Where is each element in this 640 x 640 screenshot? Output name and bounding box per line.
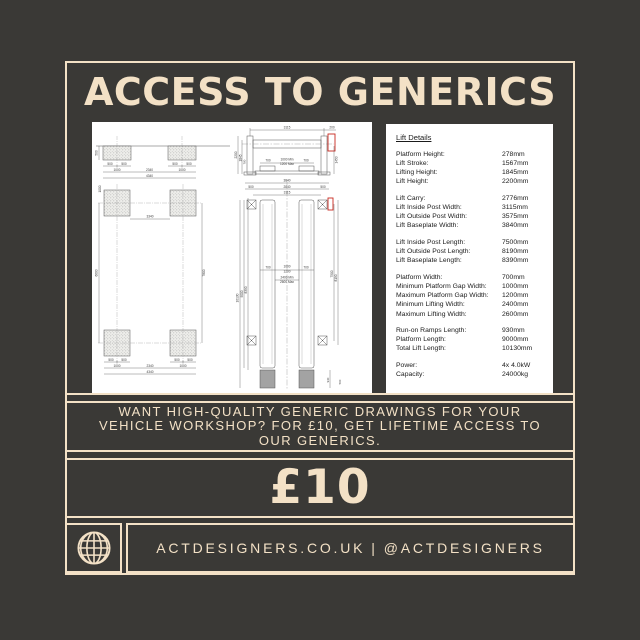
promo-box: WANT HIGH-QUALITY GENERIC DRAWINGS FOR Y… <box>65 401 575 452</box>
lift-details-row: Maximum Lifting Width: 2600mm <box>396 310 547 319</box>
spec-label: Lift Carry: <box>396 194 502 203</box>
svg-text:1000: 1000 <box>179 364 186 368</box>
lift-details-row: Run-on Ramps Length: 930mm <box>396 326 547 335</box>
spec-value: 3575mm <box>502 212 547 221</box>
spec-label <box>396 319 502 326</box>
svg-text:1000: 1000 <box>283 265 290 269</box>
page-title: ACCESS TO GENERICS <box>67 69 573 115</box>
spec-value: 1567mm <box>502 159 547 168</box>
svg-text:500: 500 <box>107 162 113 166</box>
spec-label: Lift Outside Post Length: <box>396 247 502 256</box>
spec-value: 2200mm <box>502 177 547 186</box>
lift-details-row: Lift Baseplate Width: 3840mm <box>396 221 547 230</box>
svg-text:500: 500 <box>172 162 178 166</box>
price-text: £10 <box>269 460 370 516</box>
lift-technical-drawing: 500 500 500 500 500 1000 2340 1000 4340 <box>92 122 372 393</box>
foundation-plan-view <box>98 184 202 374</box>
svg-text:1200: 1200 <box>283 270 290 274</box>
spec-label: Lift Baseplate Length: <box>396 256 502 265</box>
svg-text:3840: 3840 <box>283 179 290 183</box>
svg-text:1450: 1450 <box>335 156 339 163</box>
spec-label: Run-on Ramps Length: <box>396 326 502 335</box>
lift-details-row <box>396 231 547 238</box>
spec-label <box>396 187 502 194</box>
spec-value <box>502 266 547 273</box>
spec-label: Minimum Platform Gap Width: <box>396 282 502 291</box>
lift-details-row <box>396 187 547 194</box>
spec-value: 7500mm <box>502 238 547 247</box>
svg-text:4340: 4340 <box>146 174 153 178</box>
lift-details-row: Lift Inside Post Length: 7500mm <box>396 238 547 247</box>
spec-value: 8390mm <box>502 256 547 265</box>
footer-bar: ACTDESIGNERS.CO.UK|@ACTDESIGNERS <box>126 523 575 573</box>
lift-details-row <box>396 354 547 361</box>
spec-label <box>396 354 502 361</box>
svg-text:500: 500 <box>121 358 127 362</box>
lift-plan-view <box>240 180 338 390</box>
svg-text:780: 780 <box>243 159 247 164</box>
spec-value: 24000kg <box>502 370 547 379</box>
lift-details-row: Minimum Lifting Width: 2400mm <box>396 300 547 309</box>
svg-text:1000: 1000 <box>98 185 102 192</box>
spec-value: 4x 4.0kW <box>502 361 547 370</box>
spec-label: Minimum Lifting Width: <box>396 300 502 309</box>
svg-text:2340: 2340 <box>146 168 153 172</box>
promo-line: WANT HIGH-QUALITY GENERIC DRAWINGS FOR Y… <box>118 405 521 420</box>
footer-links: ACTDESIGNERS.CO.UK|@ACTDESIGNERS <box>156 540 545 556</box>
spec-label: Lift Inside Post Length: <box>396 238 502 247</box>
spec-value: 3840mm <box>502 221 547 230</box>
lift-details-panel: Lift Details Platform Height: 278mm Lift… <box>386 124 553 394</box>
svg-text:3115: 3115 <box>284 126 291 130</box>
social-handle[interactable]: @ACTDESIGNERS <box>384 540 545 556</box>
spec-label: Total Lift Length: <box>396 344 502 353</box>
svg-text:2200: 2200 <box>234 151 238 158</box>
svg-text:3115: 3115 <box>284 191 291 195</box>
spec-label: Maximum Platform Gap Width: <box>396 291 502 300</box>
promo-line: VEHICLE WORKSHOP? FOR £10, GET LIFETIME … <box>99 419 541 434</box>
spec-label: Platform Length: <box>396 335 502 344</box>
spec-label: Maximum Lifting Width: <box>396 310 502 319</box>
spec-label: Power: <box>396 361 502 370</box>
svg-text:3340: 3340 <box>146 215 153 219</box>
promo-line: OUR GENERICS. <box>259 434 381 449</box>
lift-details-row <box>396 319 547 326</box>
svg-text:1000: 1000 <box>113 168 120 172</box>
svg-text:930: 930 <box>326 377 330 382</box>
svg-text:700: 700 <box>303 159 309 163</box>
spec-label: Platform Height: <box>396 150 502 159</box>
spec-value: 10130mm <box>502 344 547 353</box>
website-link[interactable]: ACTDESIGNERS.CO.UK <box>156 540 365 556</box>
svg-text:1200 Max: 1200 Max <box>280 162 294 166</box>
svg-text:500: 500 <box>320 185 326 189</box>
spec-value <box>502 231 547 238</box>
frame-content: ACCESS TO GENERICS <box>67 63 573 573</box>
lift-details-row: Minimum Platform Gap Width: 1000mm <box>396 282 547 291</box>
lift-details-row: Maximum Platform Gap Width: 1200mm <box>396 291 547 300</box>
svg-text:200: 200 <box>329 126 335 130</box>
svg-text:2600 Max: 2600 Max <box>280 280 294 284</box>
lift-details-row: Lift Outside Post Length: 8190mm <box>396 247 547 256</box>
svg-text:500: 500 <box>174 358 180 362</box>
spec-value: 1000mm <box>502 282 547 291</box>
spec-value: 2600mm <box>502 310 547 319</box>
lift-details-row: Capacity: 24000kg <box>396 370 547 379</box>
svg-text:1000: 1000 <box>113 364 120 368</box>
globe-box <box>65 523 122 573</box>
spec-label: Lifting Height: <box>396 168 502 177</box>
lift-details-row: Lift Stroke: 1567mm <box>396 159 547 168</box>
svg-text:1000: 1000 <box>178 168 185 172</box>
lift-details-row: Platform Length: 9000mm <box>396 335 547 344</box>
spec-value <box>502 319 547 326</box>
svg-text:500: 500 <box>108 358 114 362</box>
spec-value: 930mm <box>502 326 547 335</box>
footer-separator: | <box>365 540 383 556</box>
globe-icon <box>75 529 113 567</box>
lift-details-row: Platform Width: 700mm <box>396 273 547 282</box>
spec-value <box>502 187 547 194</box>
svg-text:500: 500 <box>121 162 127 166</box>
spec-label: Lift Inside Post Width: <box>396 203 502 212</box>
lift-details-heading: Lift Details <box>396 132 547 143</box>
svg-text:500: 500 <box>338 379 342 384</box>
svg-text:1000 Min: 1000 Min <box>280 158 293 162</box>
promo-post: { "theme":{"bg":"#3a3936","cream":"#f3e1… <box>0 0 640 640</box>
lift-elevation-view <box>238 128 336 175</box>
spec-value: 8190mm <box>502 247 547 256</box>
svg-text:500: 500 <box>186 162 192 166</box>
lift-details-row: Total Lift Length: 10130mm <box>396 344 547 353</box>
lift-details-row: Power: 4x 4.0kW <box>396 361 547 370</box>
spec-label: Capacity: <box>396 370 502 379</box>
svg-text:2840: 2840 <box>283 185 290 189</box>
svg-text:7800: 7800 <box>202 269 206 276</box>
svg-text:4340: 4340 <box>146 370 153 374</box>
svg-text:10130: 10130 <box>236 293 240 302</box>
spec-value: 2400mm <box>502 300 547 309</box>
spec-value: 1200mm <box>502 291 547 300</box>
spec-value: 1845mm <box>502 168 547 177</box>
svg-text:700: 700 <box>265 159 271 163</box>
svg-text:500: 500 <box>95 150 99 156</box>
spec-label <box>396 231 502 238</box>
lift-details-row: Lift Outside Post Width: 3575mm <box>396 212 547 221</box>
lift-details-row: Lift Height: 2200mm <box>396 177 547 186</box>
spec-label <box>396 266 502 273</box>
svg-text:8190: 8190 <box>334 274 338 281</box>
price-box: £10 <box>65 458 575 518</box>
outer-frame: ACCESS TO GENERICS <box>65 61 575 575</box>
lift-details-row: Lift Inside Post Width: 3115mm <box>396 203 547 212</box>
svg-text:500: 500 <box>248 185 254 189</box>
lift-plan-dims: 3840 500 2840 500 3115 700 1000 700 1200… <box>236 179 343 385</box>
spec-value: 278mm <box>502 150 547 159</box>
lift-details-row: Lift Carry: 2776mm <box>396 194 547 203</box>
svg-text:500: 500 <box>187 358 193 362</box>
svg-text:2340: 2340 <box>146 364 153 368</box>
spec-value: 3115mm <box>502 203 547 212</box>
spec-label: Lift Outside Post Width: <box>396 212 502 221</box>
svg-text:2400 Min: 2400 Min <box>280 276 293 280</box>
spec-value: 2776mm <box>502 194 547 203</box>
spec-label: Platform Width: <box>396 273 502 282</box>
spec-value: 700mm <box>502 273 547 282</box>
lift-details-row: Lifting Height: 1845mm <box>396 168 547 177</box>
spec-value <box>502 354 547 361</box>
lift-details-table: Platform Height: 278mm Lift Stroke: 1567… <box>396 150 547 379</box>
lift-details-row: Lift Baseplate Length: 8390mm <box>396 256 547 265</box>
lift-elevation-dims: 3115 200 2200 1845 780 700 1000 Min 700 … <box>234 126 339 167</box>
svg-text:700: 700 <box>303 266 309 270</box>
svg-text:8390: 8390 <box>244 286 248 293</box>
spec-label: Lift Stroke: <box>396 159 502 168</box>
lift-details-row <box>396 266 547 273</box>
spec-value: 9000mm <box>502 335 547 344</box>
svg-text:6600: 6600 <box>95 269 99 276</box>
lift-details-row: Platform Height: 278mm <box>396 150 547 159</box>
svg-text:700: 700 <box>265 266 271 270</box>
section-divider <box>65 393 575 395</box>
spec-label: Lift Baseplate Width: <box>396 221 502 230</box>
spec-label: Lift Height: <box>396 177 502 186</box>
drawing-sheet: 500 500 500 500 500 1000 2340 1000 4340 <box>92 122 372 393</box>
